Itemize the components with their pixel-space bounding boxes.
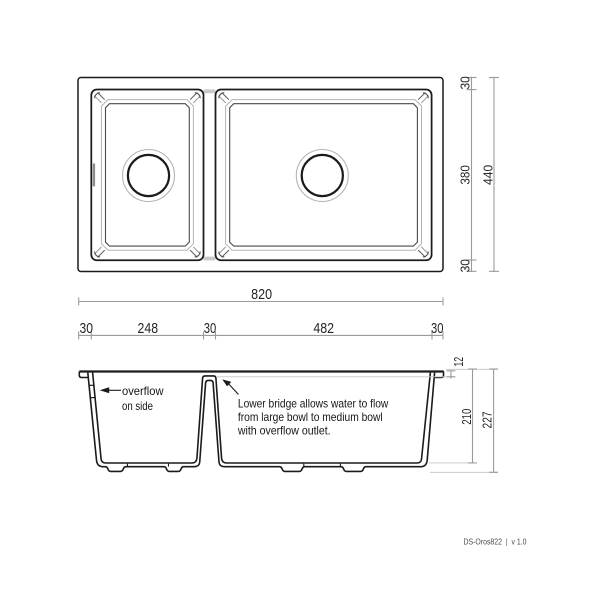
svg-text:30: 30 xyxy=(459,76,473,89)
svg-text:from large bowl to medium bowl: from large bowl to medium bowl xyxy=(238,411,383,424)
svg-text:with overflow outlet.: with overflow outlet. xyxy=(237,425,331,438)
svg-text:380: 380 xyxy=(459,165,473,185)
svg-text:30: 30 xyxy=(79,321,93,337)
svg-text:820: 820 xyxy=(251,287,272,303)
svg-text:30: 30 xyxy=(459,259,473,272)
svg-text:227: 227 xyxy=(480,412,494,429)
svg-text:482: 482 xyxy=(313,321,334,337)
svg-text:30: 30 xyxy=(431,321,444,337)
svg-text:DS-Oros822 | v 1.0: DS-Oros822 | v 1.0 xyxy=(464,537,527,547)
svg-text:on side: on side xyxy=(122,400,153,413)
svg-text:440: 440 xyxy=(482,165,496,185)
svg-text:overflow: overflow xyxy=(122,385,164,398)
svg-text:210: 210 xyxy=(460,409,474,425)
svg-text:Lower bridge allows water to f: Lower bridge allows water to flow xyxy=(238,397,389,410)
svg-text:248: 248 xyxy=(138,321,159,337)
svg-text:12: 12 xyxy=(452,357,466,367)
svg-text:30: 30 xyxy=(204,321,217,337)
